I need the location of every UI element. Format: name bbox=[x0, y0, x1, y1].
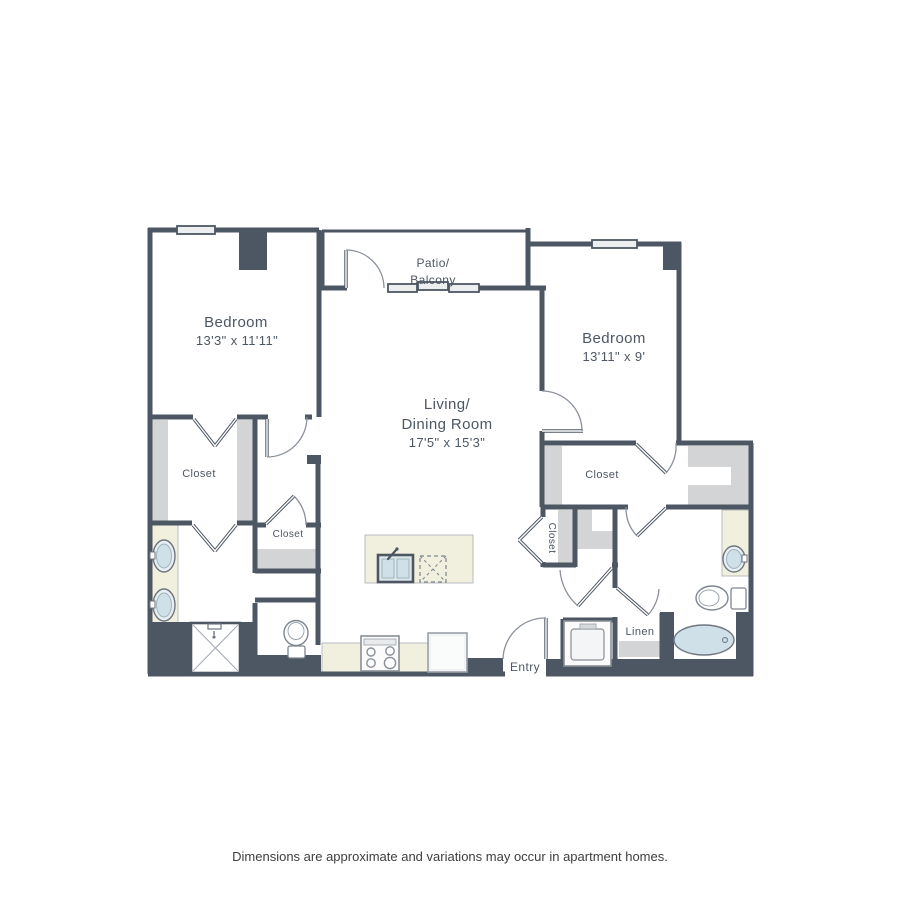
entry-label: Entry bbox=[510, 660, 540, 674]
toilet-icon bbox=[284, 621, 308, 659]
disclaimer-text: Dimensions are approximate and variation… bbox=[232, 849, 668, 864]
toilet-icon bbox=[696, 586, 746, 610]
faucet-icon bbox=[150, 601, 155, 608]
refrigerator-icon bbox=[428, 633, 467, 672]
closet-small-label: Closet bbox=[546, 523, 557, 554]
closet-bedroom1-label: Closet bbox=[182, 468, 216, 480]
living-label-line2: Dining Room bbox=[401, 416, 492, 433]
closet-bedroom2-label: Closet bbox=[585, 469, 619, 481]
faucet-icon bbox=[742, 555, 747, 562]
patio-label-line2: Balcony bbox=[410, 273, 456, 287]
bedroom1-label: Bedroom bbox=[204, 314, 268, 331]
structural-column-left bbox=[239, 230, 267, 270]
living-label-line1: Living/ bbox=[424, 396, 471, 413]
living-dims: 17'5" x 15'3" bbox=[409, 435, 486, 450]
stove-icon bbox=[361, 636, 399, 671]
floor-plan-page: Bedroom 13'3" x 11'11" Bedroom 13'11" x … bbox=[0, 0, 900, 900]
bedroom2-label: Bedroom bbox=[582, 330, 646, 347]
bedroom1-dims: 13'3" x 11'11" bbox=[196, 333, 278, 348]
washer-dryer-icon bbox=[564, 621, 611, 666]
floor-plan-diagram: Bedroom 13'3" x 11'11" Bedroom 13'11" x … bbox=[0, 0, 900, 900]
faucet-icon bbox=[150, 552, 155, 559]
bedroom2-window bbox=[592, 240, 637, 248]
shower-icon bbox=[191, 623, 240, 673]
bedroom2-dims: 13'11" x 9' bbox=[583, 349, 646, 364]
closet-hall-label: Closet bbox=[273, 529, 304, 540]
door-swing-arcs bbox=[267, 250, 676, 659]
linen-label: Linen bbox=[626, 626, 655, 638]
patio-label-line1: Patio/ bbox=[416, 256, 449, 270]
bathtub-icon bbox=[674, 625, 734, 655]
bedroom1-window bbox=[177, 226, 215, 234]
